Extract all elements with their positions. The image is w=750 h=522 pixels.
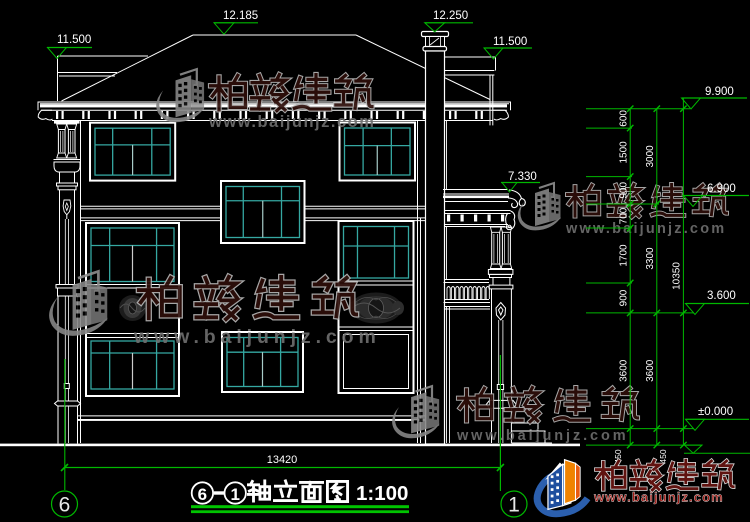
svg-text:12.250: 12.250 [433, 10, 468, 22]
svg-text:3600: 3600 [619, 359, 630, 382]
svg-text:6.900: 6.900 [707, 183, 736, 195]
svg-text:900: 900 [619, 182, 630, 199]
svg-text:www.baijunjz.com: www.baijunjz.com [456, 428, 629, 444]
svg-text:600: 600 [619, 110, 630, 127]
svg-text:11.500: 11.500 [57, 34, 91, 46]
svg-text:1500: 1500 [619, 141, 630, 164]
svg-text:1: 1 [508, 494, 520, 517]
svg-text:3600: 3600 [645, 359, 656, 382]
svg-text:6: 6 [59, 494, 71, 517]
svg-text:www.baijunjz.com: www.baijunjz.com [208, 113, 375, 131]
svg-text:10350: 10350 [672, 262, 683, 290]
svg-text:1: 1 [230, 485, 239, 504]
svg-text:900: 900 [619, 289, 630, 306]
svg-text:11.500: 11.500 [493, 36, 527, 48]
svg-text:7.330: 7.330 [508, 171, 537, 183]
svg-text:www.baijunjz.com: www.baijunjz.com [133, 326, 381, 348]
svg-text:3300: 3300 [645, 247, 656, 270]
svg-text:www.baijunjz.com: www.baijunjz.com [565, 221, 726, 237]
svg-text:1700: 1700 [619, 244, 630, 267]
svg-text:12.185: 12.185 [223, 10, 258, 22]
svg-text:3000: 3000 [645, 145, 656, 168]
svg-text:13420: 13420 [267, 454, 298, 466]
svg-text:9.900: 9.900 [705, 86, 734, 98]
svg-text:1:100: 1:100 [356, 482, 408, 505]
svg-text:www.baijunjz.com: www.baijunjz.com [593, 490, 724, 505]
svg-text:±0.000: ±0.000 [698, 406, 733, 418]
svg-text:700: 700 [619, 207, 630, 224]
svg-text:3.600: 3.600 [707, 290, 736, 302]
svg-text:6: 6 [198, 485, 207, 504]
svg-text:450: 450 [658, 449, 668, 463]
